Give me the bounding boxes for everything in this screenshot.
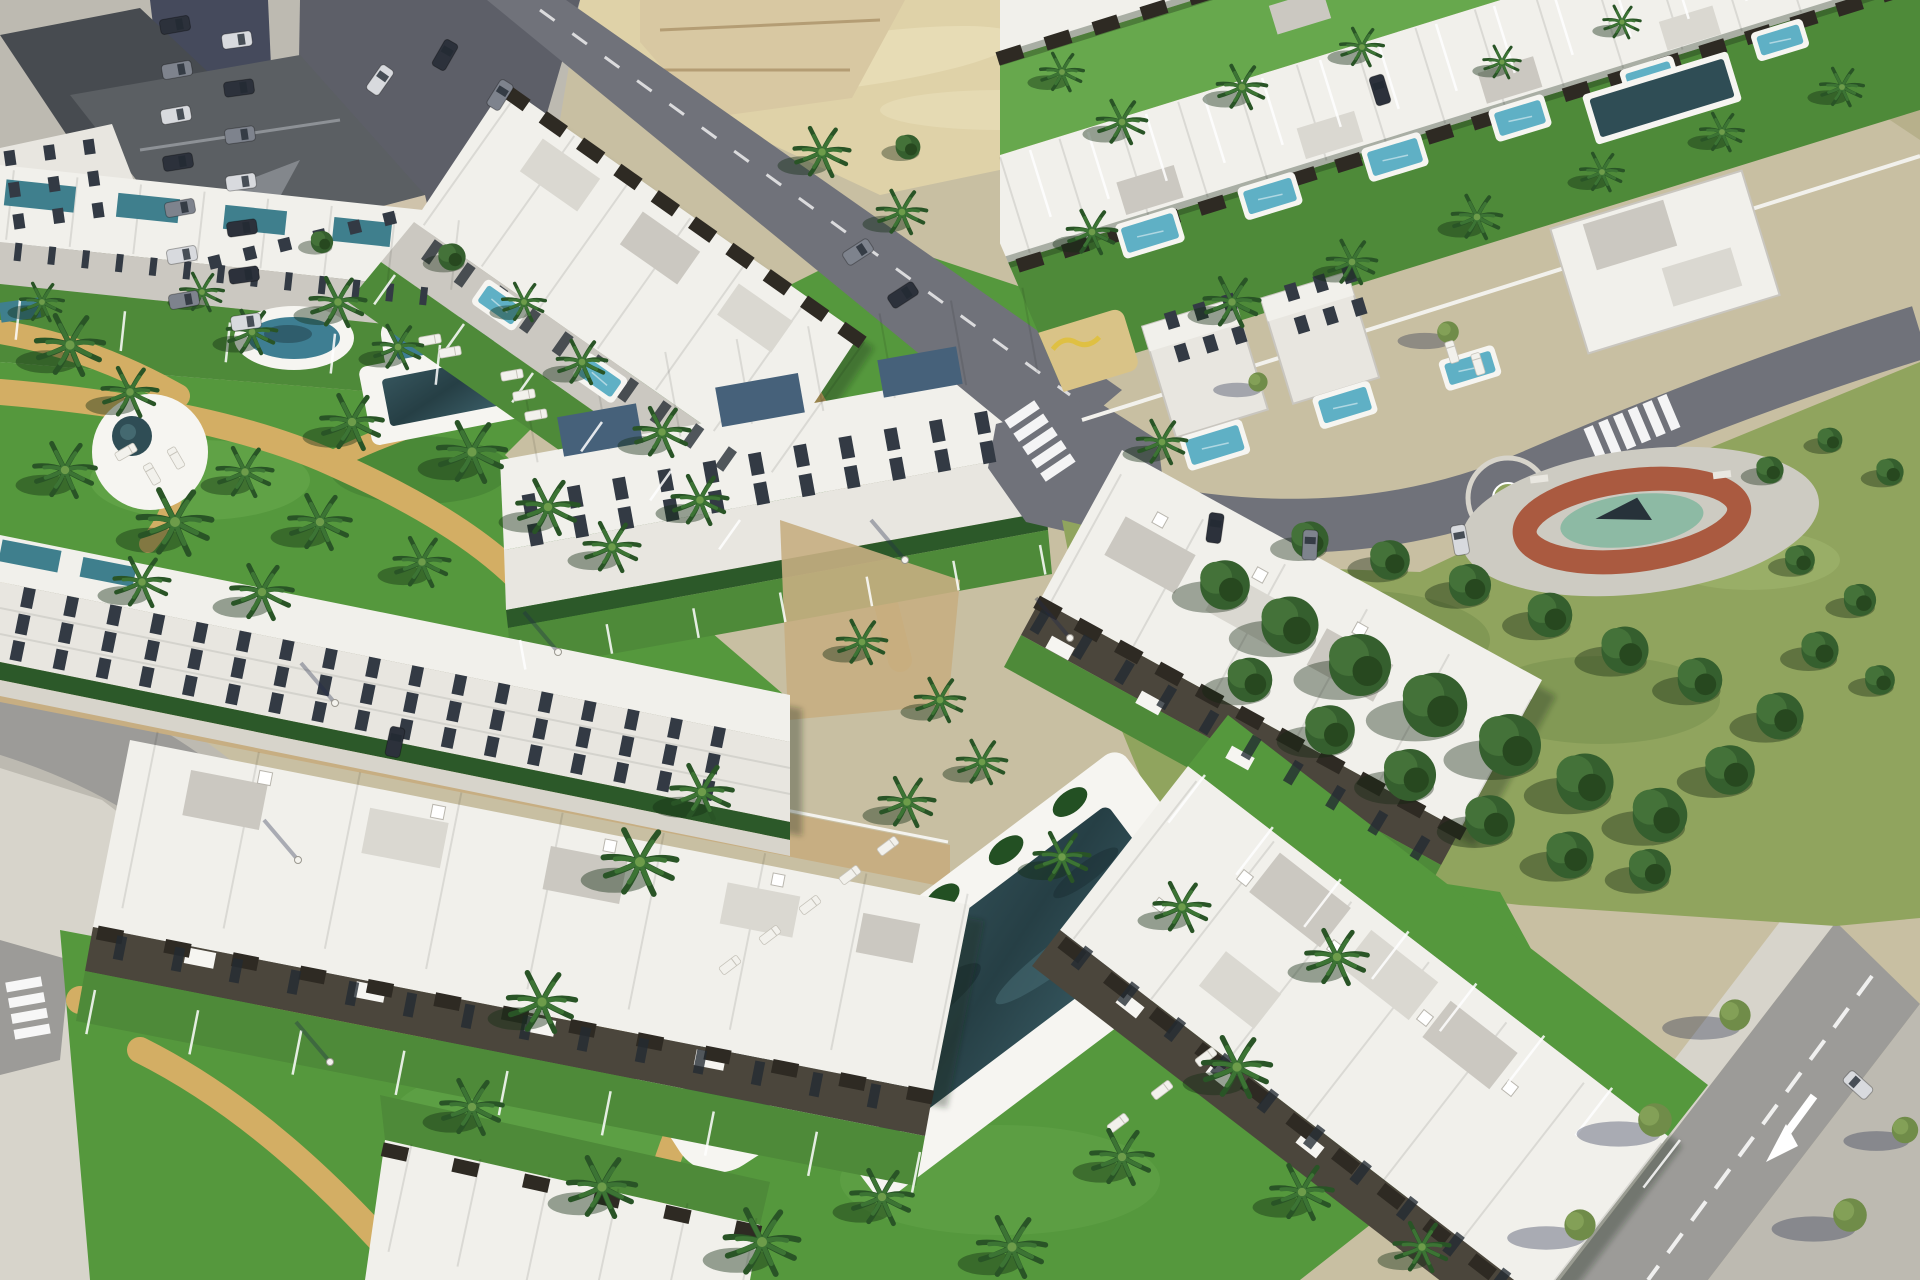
car [1302,530,1319,561]
window [8,181,21,197]
window [4,150,17,166]
window [87,170,100,186]
window [43,144,56,160]
roof-detail [603,839,617,853]
window [12,213,25,229]
aerial-render-screenshot: Aerial 3D architectural render of a Medi… [0,0,1920,1280]
window [83,139,96,155]
window [48,176,61,192]
window [92,202,105,218]
roof-detail [257,770,272,785]
roof-detail [771,873,785,887]
window [52,208,65,224]
roof-detail [430,804,445,819]
scene-canvas [0,0,1920,1280]
